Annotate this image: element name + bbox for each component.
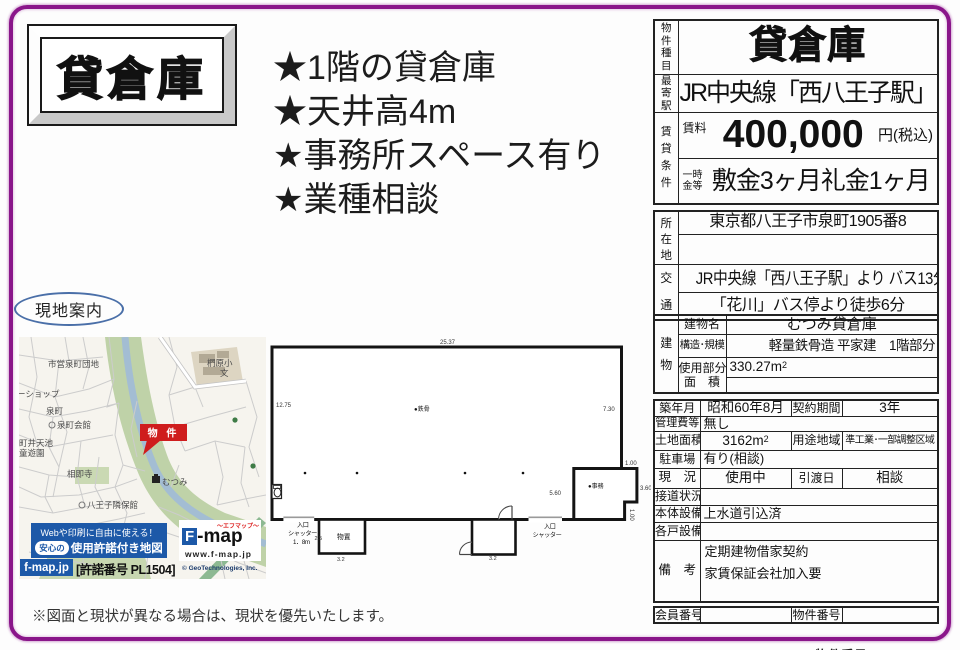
svg-text:ーショップ: ーショップ <box>19 389 60 399</box>
svg-text:入口: 入口 <box>297 522 309 529</box>
svg-text:12.75: 12.75 <box>276 403 292 409</box>
svg-text:市営泉町団地: 市営泉町団地 <box>48 359 100 369</box>
svg-text:物 件: 物 件 <box>148 427 180 440</box>
svg-text:シャッター: シャッター <box>288 530 317 538</box>
svg-text:3.2: 3.2 <box>489 556 497 562</box>
svg-text:シャッター: シャッター <box>533 531 562 539</box>
svg-text:物置: 物置 <box>337 532 351 541</box>
svg-text:八王子隣保館: 八王子隣保館 <box>87 500 138 510</box>
svg-text:相即寺: 相即寺 <box>67 469 93 479</box>
svg-text:むつみ: むつみ <box>162 477 188 487</box>
svg-text:1.00: 1.00 <box>628 509 634 521</box>
svg-text:文: 文 <box>220 368 229 378</box>
svg-text:1．8m: 1．8m <box>293 539 310 546</box>
svg-text:町井天池: 町井天池 <box>19 438 54 448</box>
svg-text:25.37: 25.37 <box>440 340 456 346</box>
svg-text:泉町会館: 泉町会館 <box>57 420 91 430</box>
svg-text:泉町: 泉町 <box>46 406 64 416</box>
svg-text:童遊園: 童遊園 <box>19 448 45 458</box>
svg-text:●鉄骨: ●鉄骨 <box>414 405 430 413</box>
svg-text:3.60: 3.60 <box>640 486 651 492</box>
svg-text:7.30: 7.30 <box>603 407 615 413</box>
svg-text:●事務: ●事務 <box>588 482 604 490</box>
svg-text:入口: 入口 <box>544 524 556 531</box>
svg-text:5.60: 5.60 <box>549 491 561 497</box>
svg-text:椚原小: 椚原小 <box>207 358 233 368</box>
svg-text:1.00: 1.00 <box>625 461 637 467</box>
svg-text:3.2: 3.2 <box>337 557 345 563</box>
